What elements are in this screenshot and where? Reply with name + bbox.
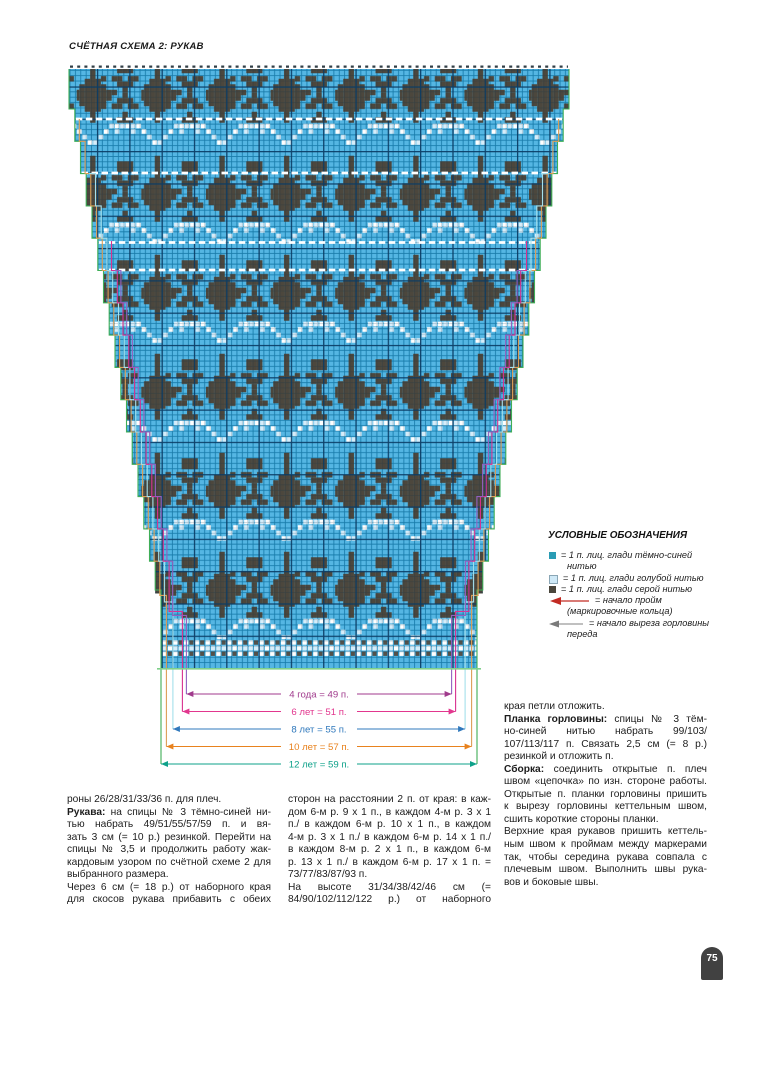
svg-text:12 лет = 59 п.: 12 лет = 59 п. (289, 760, 349, 771)
svg-text:6 лет = 51 п.: 6 лет = 51 п. (291, 707, 346, 718)
svg-text:4 года = 49 п.: 4 года = 49 п. (289, 690, 348, 701)
svg-text:10 лет = 57 п.: 10 лет = 57 п. (289, 742, 349, 753)
svg-text:8 лет = 55 п.: 8 лет = 55 п. (291, 725, 346, 736)
